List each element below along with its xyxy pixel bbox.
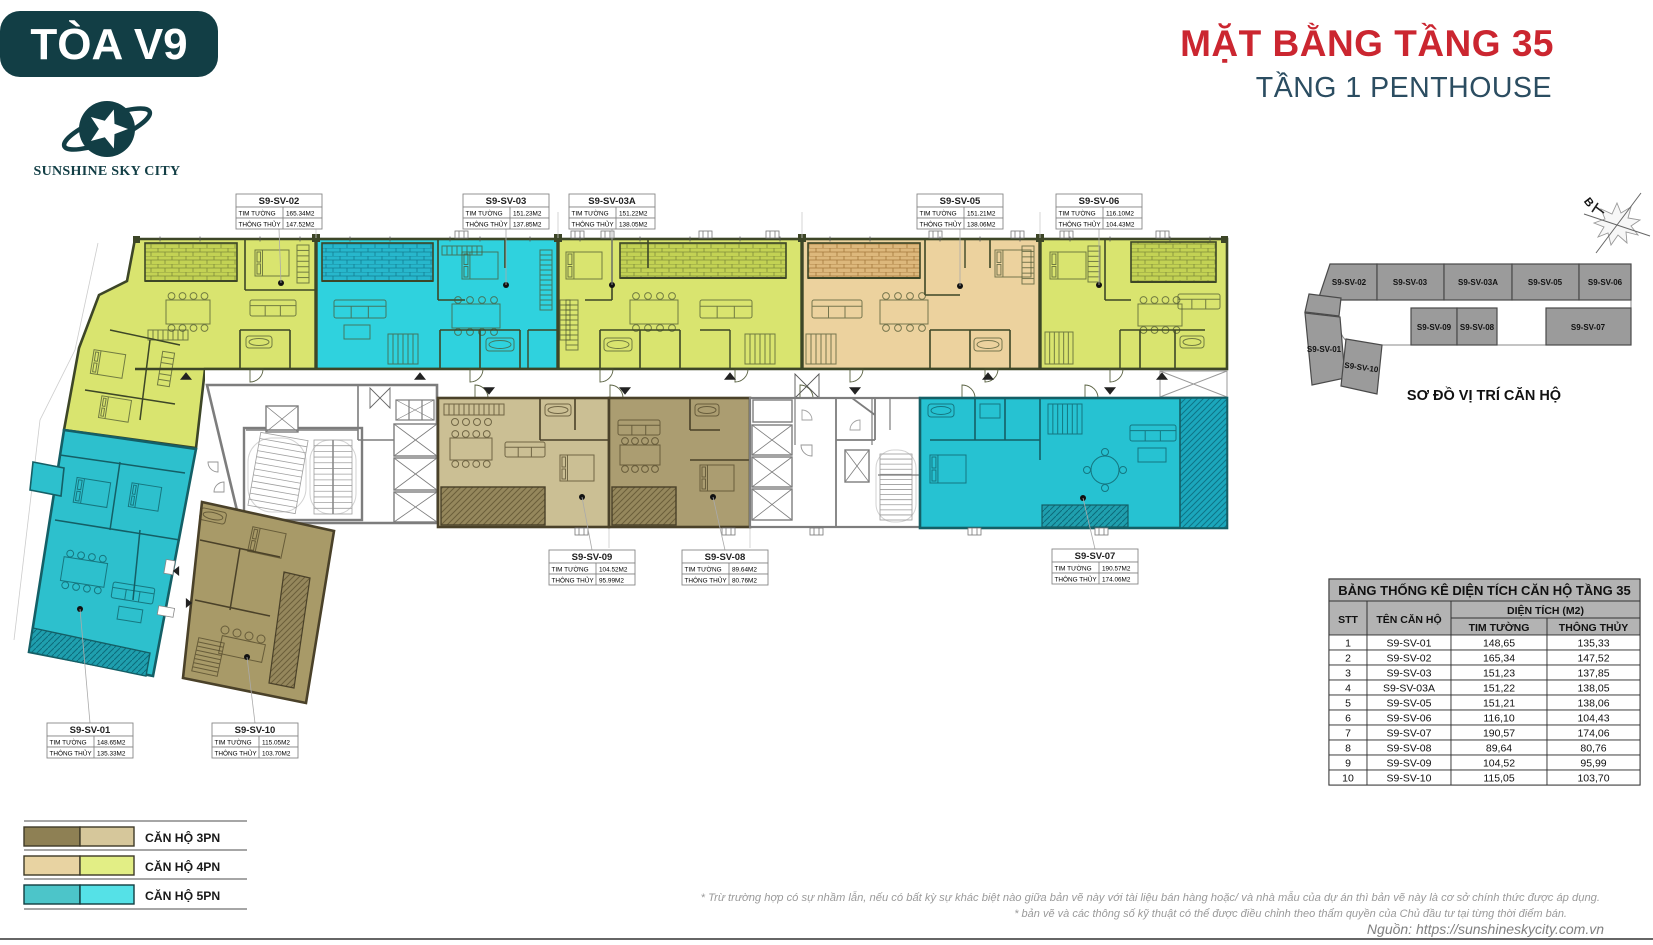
- svg-text:S9-SV-03: S9-SV-03: [1387, 668, 1432, 680]
- svg-text:TIM TƯỜNG: TIM TƯỜNG: [239, 209, 276, 218]
- svg-text:S9-SV-03: S9-SV-03: [486, 196, 527, 207]
- svg-text:S9-SV-02: S9-SV-02: [259, 196, 300, 207]
- svg-text:DIỆN TÍCH (M2): DIỆN TÍCH (M2): [1507, 604, 1584, 617]
- svg-text:S9-SV-07: S9-SV-07: [1571, 323, 1606, 332]
- svg-text:103,70: 103,70: [1577, 773, 1609, 785]
- svg-text:104.43M2: 104.43M2: [1106, 222, 1135, 229]
- svg-text:S9-SV-07: S9-SV-07: [1387, 728, 1432, 740]
- svg-text:SUNSHINE SKY CITY: SUNSHINE SKY CITY: [34, 164, 181, 179]
- svg-text:10: 10: [1342, 773, 1354, 785]
- svg-text:TẦNG 1 PENTHOUSE: TẦNG 1 PENTHOUSE: [1256, 72, 1552, 104]
- svg-text:S9-SV-01: S9-SV-01: [1387, 638, 1432, 650]
- svg-text:104,43: 104,43: [1577, 713, 1609, 725]
- svg-text:174,06: 174,06: [1577, 728, 1609, 740]
- svg-text:S9-SV-06: S9-SV-06: [1387, 713, 1432, 725]
- svg-text:95,99: 95,99: [1580, 758, 1606, 770]
- svg-text:151,21: 151,21: [1483, 698, 1515, 710]
- svg-text:S9-SV-10: S9-SV-10: [1387, 773, 1432, 785]
- svg-text:THÔNG THỦY: THÔNG THỦY: [1059, 220, 1102, 229]
- svg-text:115.05M2: 115.05M2: [262, 740, 290, 747]
- svg-text:THÔNG THỦY: THÔNG THỦY: [215, 749, 258, 758]
- svg-text:CĂN HỘ 3PN: CĂN HỘ 3PN: [145, 830, 220, 845]
- svg-text:9: 9: [1345, 758, 1351, 770]
- svg-text:CĂN HỘ 5PN: CĂN HỘ 5PN: [145, 888, 220, 903]
- svg-text:BẢNG THỐNG KÊ DIỆN TÍCH CĂN HỘ: BẢNG THỐNG KÊ DIỆN TÍCH CĂN HỘ TẦNG 35: [1338, 583, 1631, 598]
- svg-text:TÒA V9: TÒA V9: [30, 19, 187, 69]
- svg-text:MẶT BẰNG TẦNG 35: MẶT BẰNG TẦNG 35: [1180, 23, 1554, 64]
- svg-text:S9-SV-06: S9-SV-06: [1079, 196, 1120, 207]
- svg-text:S9-SV-02: S9-SV-02: [1387, 653, 1432, 665]
- svg-text:S9-SV-02: S9-SV-02: [1332, 278, 1367, 287]
- svg-text:STT: STT: [1338, 614, 1358, 626]
- svg-text:89,64: 89,64: [1486, 743, 1512, 755]
- svg-text:CĂN HỘ 4PN: CĂN HỘ 4PN: [145, 859, 220, 874]
- svg-text:S9-SV-09: S9-SV-09: [1387, 758, 1432, 770]
- svg-text:TIM TƯỜNG: TIM TƯỜNG: [1469, 621, 1530, 634]
- svg-text:S9-SV-10: S9-SV-10: [235, 725, 276, 736]
- svg-text:S9-SV-09: S9-SV-09: [572, 552, 613, 563]
- svg-text:165,34: 165,34: [1483, 653, 1515, 665]
- svg-text:138.05M2: 138.05M2: [619, 222, 648, 229]
- svg-text:S9-SV-08: S9-SV-08: [705, 552, 746, 563]
- svg-text:S9-SV-03A: S9-SV-03A: [588, 196, 636, 207]
- svg-text:THÔNG THỦY: THÔNG THỦY: [1559, 621, 1628, 634]
- svg-text:151,23: 151,23: [1483, 668, 1515, 680]
- svg-text:103.70M2: 103.70M2: [262, 751, 291, 758]
- svg-text:7: 7: [1345, 728, 1351, 740]
- svg-text:S9-SV-03A: S9-SV-03A: [1458, 278, 1498, 287]
- svg-text:* bản vẽ và các thông số kỹ th: * bản vẽ và các thông số kỹ thuật có thể…: [1014, 908, 1567, 920]
- svg-text:TIM TƯỜNG: TIM TƯỜNG: [685, 565, 722, 574]
- svg-text:174.06M2: 174.06M2: [1102, 577, 1131, 584]
- svg-text:147,52: 147,52: [1577, 653, 1609, 665]
- svg-text:S9-SV-05: S9-SV-05: [940, 196, 981, 207]
- svg-text:147.52M2: 147.52M2: [286, 222, 315, 229]
- svg-text:137,85: 137,85: [1577, 668, 1609, 680]
- svg-text:116.10M2: 116.10M2: [1106, 211, 1134, 218]
- svg-text:THÔNG THỦY: THÔNG THỦY: [50, 749, 93, 758]
- svg-text:TIM TƯỜNG: TIM TƯỜNG: [552, 565, 589, 574]
- svg-text:S9-SV-08: S9-SV-08: [1387, 743, 1432, 755]
- svg-text:148,65: 148,65: [1483, 638, 1515, 650]
- svg-text:190,57: 190,57: [1483, 728, 1515, 740]
- svg-text:S9-SV-05: S9-SV-05: [1528, 278, 1563, 287]
- svg-text:S9-SV-03: S9-SV-03: [1393, 278, 1428, 287]
- svg-text:TIM TƯỜNG: TIM TƯỜNG: [920, 209, 957, 218]
- svg-text:THÔNG THỦY: THÔNG THỦY: [1055, 575, 1098, 584]
- svg-text:TIM TƯỜNG: TIM TƯỜNG: [215, 738, 252, 747]
- svg-text:S9-SV-07: S9-SV-07: [1075, 551, 1116, 562]
- svg-text:5: 5: [1345, 698, 1351, 710]
- svg-text:S9-SV-03A: S9-SV-03A: [1383, 683, 1435, 695]
- svg-text:THÔNG THỦY: THÔNG THỦY: [552, 576, 595, 585]
- svg-text:* Trừ trường hợp có sự nhầm lẫ: * Trừ trường hợp có sự nhầm lẫn, nếu có …: [701, 891, 1600, 904]
- svg-text:8: 8: [1345, 743, 1351, 755]
- svg-text:TIM TƯỜNG: TIM TƯỜNG: [1059, 209, 1096, 218]
- svg-text:138,06: 138,06: [1577, 698, 1609, 710]
- svg-text:TIM TƯỜNG: TIM TƯỜNG: [1055, 564, 1092, 573]
- svg-text:S9-SV-08: S9-SV-08: [1460, 323, 1495, 332]
- svg-text:4: 4: [1345, 683, 1351, 695]
- svg-text:THÔNG THỦY: THÔNG THỦY: [685, 576, 728, 585]
- svg-text:THÔNG THỦY: THÔNG THỦY: [572, 220, 615, 229]
- svg-text:80,76: 80,76: [1580, 743, 1606, 755]
- svg-text:80.76M2: 80.76M2: [732, 578, 757, 585]
- svg-text:S9-SV-05: S9-SV-05: [1387, 698, 1432, 710]
- svg-text:151.22M2: 151.22M2: [619, 211, 648, 218]
- svg-text:S9-SV-09: S9-SV-09: [1417, 323, 1452, 332]
- svg-text:1: 1: [1345, 638, 1351, 650]
- svg-text:116,10: 116,10: [1483, 713, 1514, 725]
- svg-text:151.21M2: 151.21M2: [967, 211, 996, 218]
- svg-text:151.23M2: 151.23M2: [513, 211, 542, 218]
- svg-text:89.64M2: 89.64M2: [732, 567, 757, 574]
- svg-text:135.33M2: 135.33M2: [97, 751, 126, 758]
- svg-text:165.34M2: 165.34M2: [286, 211, 315, 218]
- svg-text:135,33: 135,33: [1577, 638, 1609, 650]
- svg-text:2: 2: [1345, 653, 1351, 665]
- svg-text:S9-SV-01: S9-SV-01: [1307, 345, 1342, 354]
- svg-text:TIM TƯỜNG: TIM TƯỜNG: [572, 209, 609, 218]
- svg-text:6: 6: [1345, 713, 1351, 725]
- svg-text:THÔNG THỦY: THÔNG THỦY: [920, 220, 963, 229]
- svg-text:S9-SV-01: S9-SV-01: [70, 725, 111, 736]
- svg-text:104.52M2: 104.52M2: [599, 567, 628, 574]
- svg-text:138.06M2: 138.06M2: [967, 222, 996, 229]
- svg-text:TIM TƯỜNG: TIM TƯỜNG: [50, 738, 87, 747]
- svg-text:3: 3: [1345, 668, 1351, 680]
- svg-text:THÔNG THỦY: THÔNG THỦY: [239, 220, 282, 229]
- svg-text:148.65M2: 148.65M2: [97, 740, 126, 747]
- svg-text:115,05: 115,05: [1483, 773, 1514, 785]
- svg-text:Nguồn: https://sunshineskycity: Nguồn: https://sunshineskycity.com.vn: [1367, 921, 1604, 937]
- svg-text:TIM TƯỜNG: TIM TƯỜNG: [466, 209, 503, 218]
- svg-text:TÊN CĂN HỘ: TÊN CĂN HỘ: [1376, 613, 1441, 626]
- svg-text:138,05: 138,05: [1577, 683, 1609, 695]
- svg-text:SƠ ĐỒ VỊ TRÍ CĂN HỘ: SƠ ĐỒ VỊ TRÍ CĂN HỘ: [1407, 386, 1561, 404]
- svg-text:137.85M2: 137.85M2: [513, 222, 542, 229]
- svg-text:151,22: 151,22: [1483, 683, 1515, 695]
- svg-text:95.99M2: 95.99M2: [599, 578, 624, 585]
- svg-text:104,52: 104,52: [1483, 758, 1515, 770]
- svg-text:S9-SV-06: S9-SV-06: [1588, 278, 1623, 287]
- svg-text:THÔNG THỦY: THÔNG THỦY: [466, 220, 509, 229]
- svg-text:190.57M2: 190.57M2: [1102, 566, 1131, 573]
